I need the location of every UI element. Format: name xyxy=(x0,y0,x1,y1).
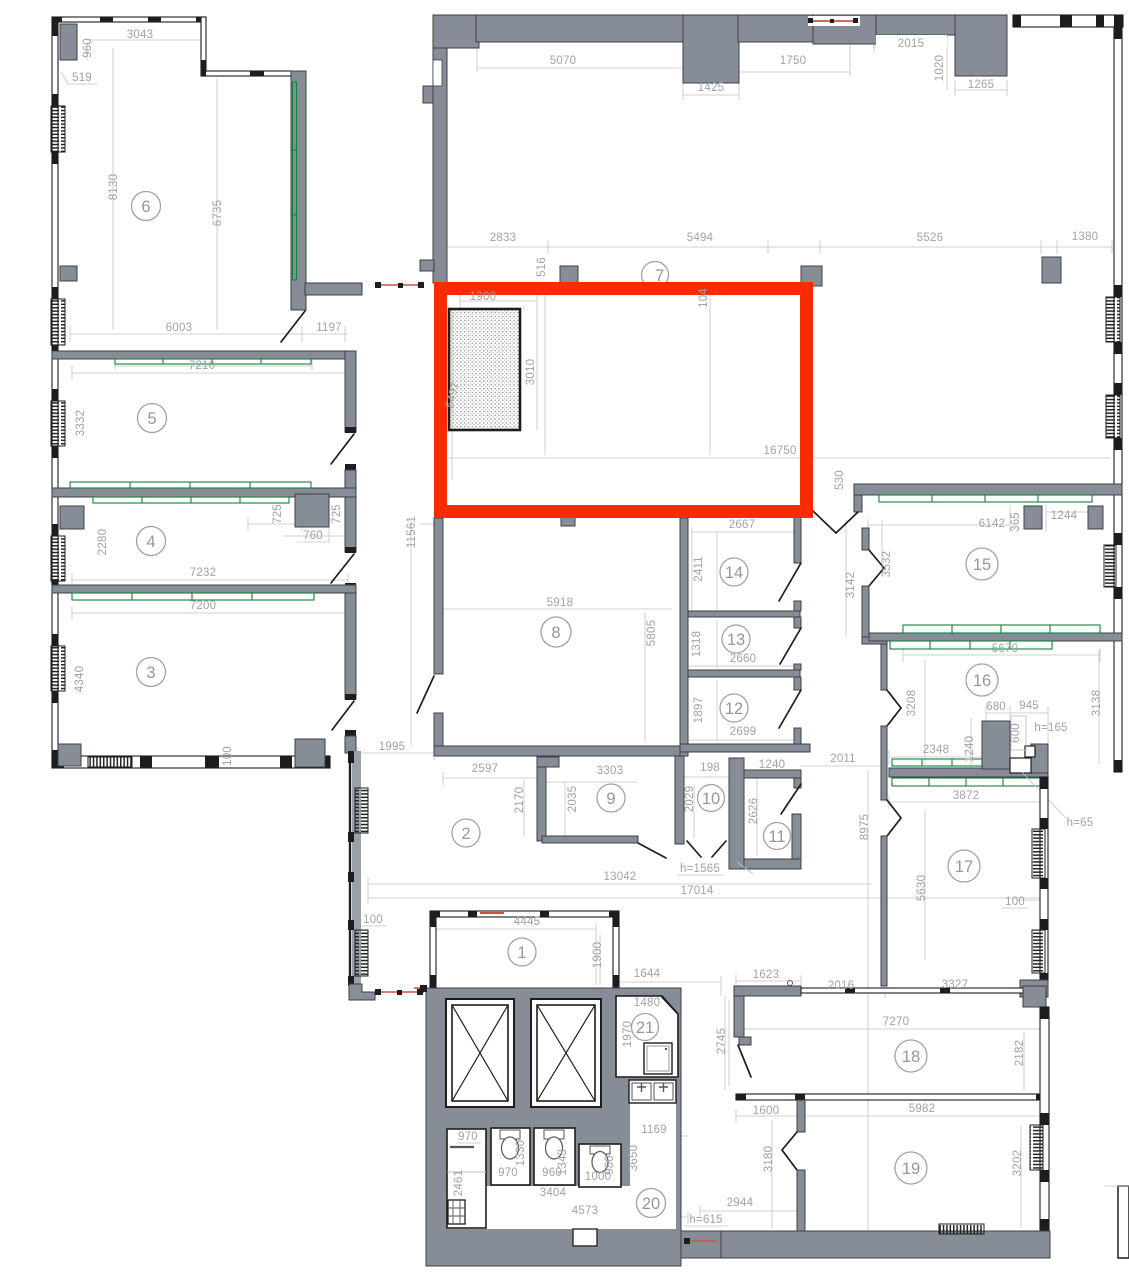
svg-text:1318: 1318 xyxy=(691,631,703,657)
svg-text:16: 16 xyxy=(973,672,991,690)
svg-text:519: 519 xyxy=(72,72,92,84)
svg-text:2029: 2029 xyxy=(684,786,696,812)
svg-text:600: 600 xyxy=(1010,723,1022,743)
svg-text:1900: 1900 xyxy=(592,942,604,968)
svg-text:2944: 2944 xyxy=(727,1197,754,1209)
svg-text:5670: 5670 xyxy=(992,643,1018,655)
svg-text:5918: 5918 xyxy=(547,597,573,609)
svg-text:6142: 6142 xyxy=(979,518,1005,530)
svg-text:5070: 5070 xyxy=(550,55,576,67)
svg-text:100: 100 xyxy=(1005,896,1025,908)
svg-text:100: 100 xyxy=(363,914,383,926)
svg-text:4573: 4573 xyxy=(572,1205,598,1217)
svg-text:198: 198 xyxy=(700,762,720,774)
svg-text:3332: 3332 xyxy=(75,410,87,436)
svg-text:1480: 1480 xyxy=(634,997,660,1009)
svg-text:2016: 2016 xyxy=(828,980,854,992)
svg-text:3303: 3303 xyxy=(597,765,623,777)
svg-text:2015: 2015 xyxy=(898,38,924,50)
svg-text:1425: 1425 xyxy=(698,82,724,94)
svg-text:7270: 7270 xyxy=(883,1016,909,1028)
svg-text:2660: 2660 xyxy=(730,653,756,665)
svg-text:1644: 1644 xyxy=(634,968,661,980)
svg-text:3650: 3650 xyxy=(628,1145,640,1171)
svg-text:2035: 2035 xyxy=(567,786,579,812)
svg-text:16750: 16750 xyxy=(764,445,797,457)
svg-text:6: 6 xyxy=(141,198,150,216)
svg-text:13042: 13042 xyxy=(604,871,637,883)
svg-text:2170: 2170 xyxy=(514,787,526,813)
svg-text:4340: 4340 xyxy=(74,666,86,692)
svg-text:5494: 5494 xyxy=(687,232,714,244)
svg-text:10: 10 xyxy=(702,790,720,808)
svg-text:945: 945 xyxy=(1019,700,1039,712)
svg-text:970: 970 xyxy=(458,1131,478,1143)
svg-text:5: 5 xyxy=(147,410,156,428)
svg-text:5526: 5526 xyxy=(917,232,943,244)
svg-text:980: 980 xyxy=(604,1155,616,1175)
svg-text:2411: 2411 xyxy=(693,556,705,582)
svg-text:3404: 3404 xyxy=(540,1187,567,1199)
svg-text:1380: 1380 xyxy=(1072,231,1098,243)
svg-text:7232: 7232 xyxy=(190,567,216,579)
svg-text:1600: 1600 xyxy=(753,1105,779,1117)
svg-text:11: 11 xyxy=(768,828,785,846)
svg-text:18: 18 xyxy=(902,1048,920,1066)
svg-text:13: 13 xyxy=(727,631,745,649)
svg-text:4445: 4445 xyxy=(514,916,540,928)
svg-text:h=165: h=165 xyxy=(1034,722,1067,734)
svg-text:1750: 1750 xyxy=(780,55,806,67)
svg-text:725: 725 xyxy=(272,504,284,524)
svg-text:15: 15 xyxy=(973,556,991,574)
svg-text:2182: 2182 xyxy=(1014,1040,1026,1066)
svg-text:3532: 3532 xyxy=(881,551,893,577)
svg-text:6003: 6003 xyxy=(166,322,192,334)
svg-text:3327: 3327 xyxy=(942,979,968,991)
svg-text:3138: 3138 xyxy=(1091,690,1103,716)
svg-text:6735: 6735 xyxy=(212,200,224,226)
svg-text:1197: 1197 xyxy=(316,322,342,334)
svg-text:3202: 3202 xyxy=(1012,1150,1024,1176)
svg-text:h=65: h=65 xyxy=(1067,817,1094,829)
svg-text:3142: 3142 xyxy=(845,572,857,598)
svg-text:2667: 2667 xyxy=(729,519,755,531)
svg-text:12: 12 xyxy=(725,700,743,718)
svg-text:h=615: h=615 xyxy=(689,1214,722,1226)
svg-text:h=1565: h=1565 xyxy=(680,863,720,875)
svg-text:2461: 2461 xyxy=(453,1170,465,1196)
svg-text:1020: 1020 xyxy=(934,55,946,81)
svg-text:5805: 5805 xyxy=(646,620,658,646)
svg-text:20: 20 xyxy=(642,1195,660,1213)
svg-text:2011: 2011 xyxy=(830,753,856,765)
svg-text:2280: 2280 xyxy=(97,529,109,555)
svg-text:3208: 3208 xyxy=(906,690,918,716)
svg-text:4: 4 xyxy=(146,533,155,551)
svg-text:9: 9 xyxy=(606,790,615,808)
svg-text:680: 680 xyxy=(986,701,1006,713)
svg-text:3872: 3872 xyxy=(953,790,979,802)
svg-text:1900: 1900 xyxy=(470,291,496,303)
svg-text:8130: 8130 xyxy=(108,174,120,200)
svg-text:725: 725 xyxy=(331,504,343,524)
svg-text:1897: 1897 xyxy=(693,697,705,723)
svg-text:8975: 8975 xyxy=(859,814,871,840)
svg-text:1343: 1343 xyxy=(557,1149,569,1175)
svg-text:100: 100 xyxy=(222,746,234,766)
svg-text:17014: 17014 xyxy=(681,885,714,897)
svg-text:104: 104 xyxy=(698,288,710,308)
svg-text:516: 516 xyxy=(536,257,548,277)
svg-text:3010: 3010 xyxy=(525,359,537,385)
svg-text:1240: 1240 xyxy=(964,736,976,762)
svg-text:2348: 2348 xyxy=(923,744,949,756)
svg-text:17: 17 xyxy=(955,858,973,876)
svg-text:970: 970 xyxy=(498,1167,518,1179)
svg-text:2833: 2833 xyxy=(490,232,516,244)
svg-text:1244: 1244 xyxy=(1051,510,1078,522)
svg-text:7210: 7210 xyxy=(189,360,215,372)
svg-text:1240: 1240 xyxy=(759,759,785,771)
svg-text:2: 2 xyxy=(461,825,470,843)
svg-text:3: 3 xyxy=(146,664,155,682)
svg-text:960: 960 xyxy=(82,38,94,58)
svg-text:11561: 11561 xyxy=(406,516,418,548)
svg-text:2745: 2745 xyxy=(716,1028,728,1054)
svg-text:760: 760 xyxy=(303,530,323,542)
svg-text:2597: 2597 xyxy=(472,763,498,775)
svg-text:7200: 7200 xyxy=(190,600,216,612)
svg-text:5982: 5982 xyxy=(909,1103,935,1115)
svg-text:1: 1 xyxy=(517,944,526,962)
svg-text:5630: 5630 xyxy=(916,875,928,901)
svg-text:1995: 1995 xyxy=(379,741,405,753)
svg-text:365: 365 xyxy=(1010,512,1022,532)
svg-text:19: 19 xyxy=(902,1160,920,1178)
svg-text:1623: 1623 xyxy=(753,969,779,981)
svg-text:1330: 1330 xyxy=(515,1140,527,1166)
svg-text:1169: 1169 xyxy=(641,1124,667,1136)
svg-text:14: 14 xyxy=(725,564,743,582)
svg-text:21: 21 xyxy=(636,1019,654,1037)
svg-text:2699: 2699 xyxy=(730,726,756,738)
svg-text:3180: 3180 xyxy=(763,1146,775,1172)
svg-text:530: 530 xyxy=(834,470,846,490)
svg-text:1265: 1265 xyxy=(968,79,994,91)
svg-text:3043: 3043 xyxy=(127,29,153,41)
svg-text:8: 8 xyxy=(551,624,560,642)
svg-text:2626: 2626 xyxy=(748,798,760,824)
